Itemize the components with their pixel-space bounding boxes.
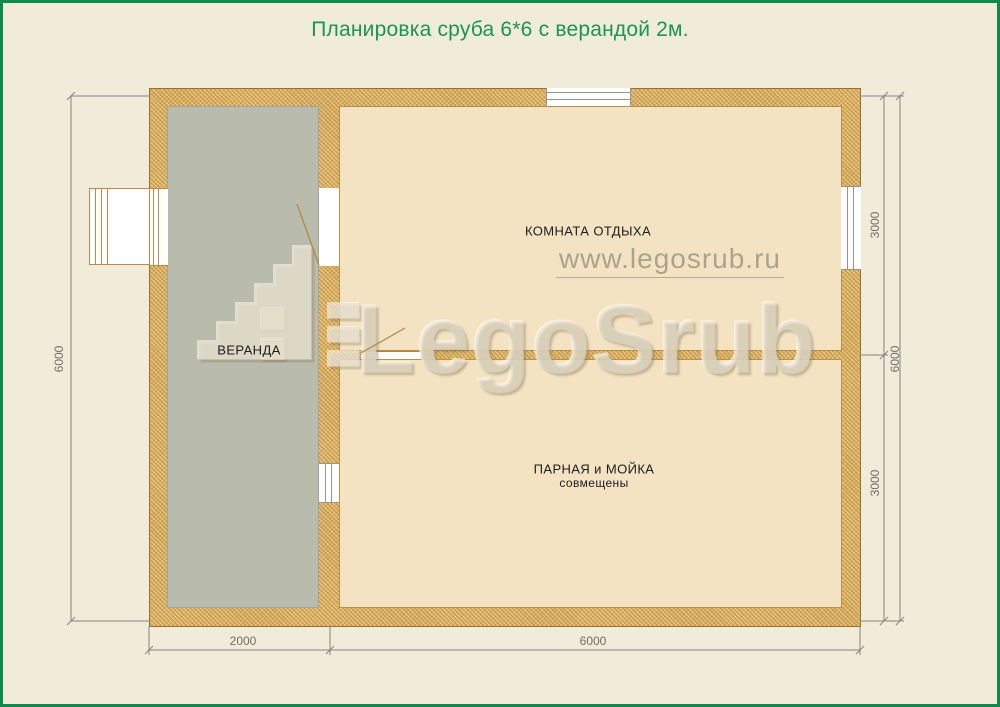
- dimension-lines: [3, 3, 1000, 707]
- steam-room-sublabel: совмещены: [559, 476, 628, 490]
- rest-room-label: КОМНАТА ОТДЫХА: [525, 224, 651, 239]
- dim-right-bottom-3000: 3000: [868, 470, 882, 497]
- floor-plan-page: Планировка сруба 6*6 с верандой 2м.: [0, 0, 1000, 707]
- dim-right-top-3000: 3000: [868, 212, 882, 239]
- dim-bottom-6000: 6000: [580, 634, 607, 648]
- door-swing-lines: [297, 204, 405, 353]
- dim-left-6000: 6000: [52, 346, 66, 373]
- dim-right-6000: 6000: [888, 346, 902, 373]
- veranda-label: ВЕРАНДА: [217, 343, 280, 358]
- steam-room-label: ПАРНАЯ и МОЙКА: [534, 462, 655, 477]
- dim-bottom-2000: 2000: [230, 634, 257, 648]
